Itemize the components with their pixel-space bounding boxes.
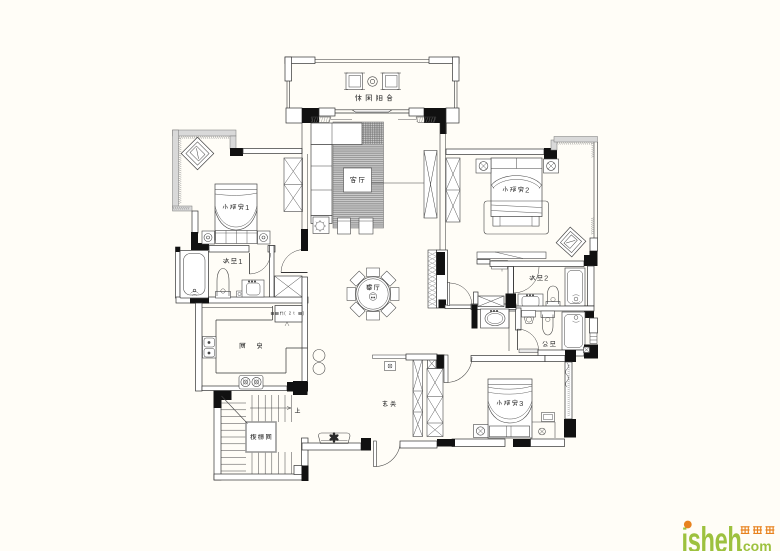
svg-text:.com: .com <box>739 538 772 551</box>
svg-text:1: 1 <box>238 257 242 266</box>
svg-text:2: 2 <box>525 185 529 194</box>
svg-text:3: 3 <box>519 399 523 408</box>
svg-text:1: 1 <box>245 203 249 212</box>
svg-text:2: 2 <box>544 274 548 283</box>
